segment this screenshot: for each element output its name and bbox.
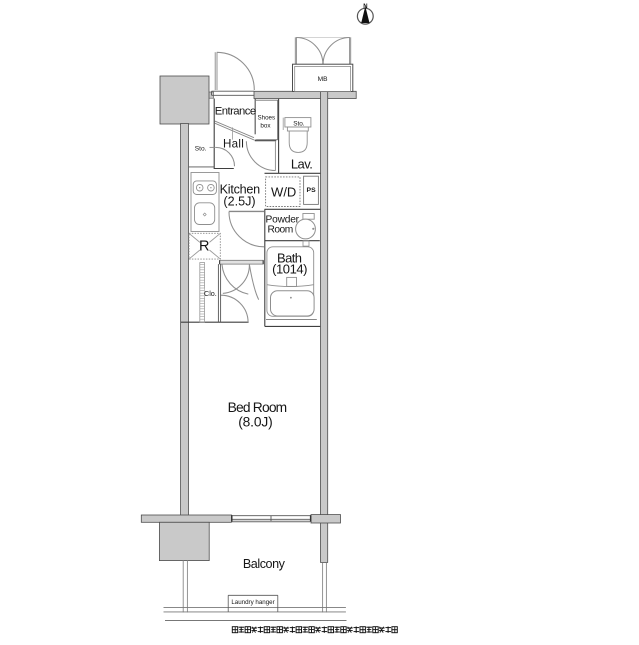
svg-text:Balcony: Balcony: [243, 557, 286, 571]
svg-text:PS: PS: [307, 187, 317, 194]
svg-text:(8.0J): (8.0J): [238, 414, 272, 429]
svg-text:Laundry hanger: Laundry hanger: [231, 599, 274, 606]
svg-text:Hall: Hall: [223, 137, 244, 150]
svg-text:Entrance: Entrance: [215, 105, 256, 117]
svg-text:R: R: [199, 238, 209, 254]
svg-text:W/D: W/D: [271, 185, 296, 200]
svg-text:Clo.: Clo.: [204, 289, 217, 298]
svg-text:(1014): (1014): [272, 261, 307, 276]
svg-text:Sto.: Sto.: [195, 146, 207, 153]
svg-text:box: box: [260, 122, 271, 129]
svg-text:Shoes: Shoes: [258, 115, 276, 122]
svg-text:(2.5J): (2.5J): [223, 195, 255, 209]
svg-text:Room: Room: [268, 224, 293, 235]
svg-text:MB: MB: [318, 76, 328, 83]
svg-text:Bed Room: Bed Room: [228, 400, 287, 415]
svg-text:Lav.: Lav.: [291, 157, 312, 172]
svg-text:Sto.: Sto.: [293, 120, 305, 127]
svg-text:N: N: [363, 4, 367, 10]
